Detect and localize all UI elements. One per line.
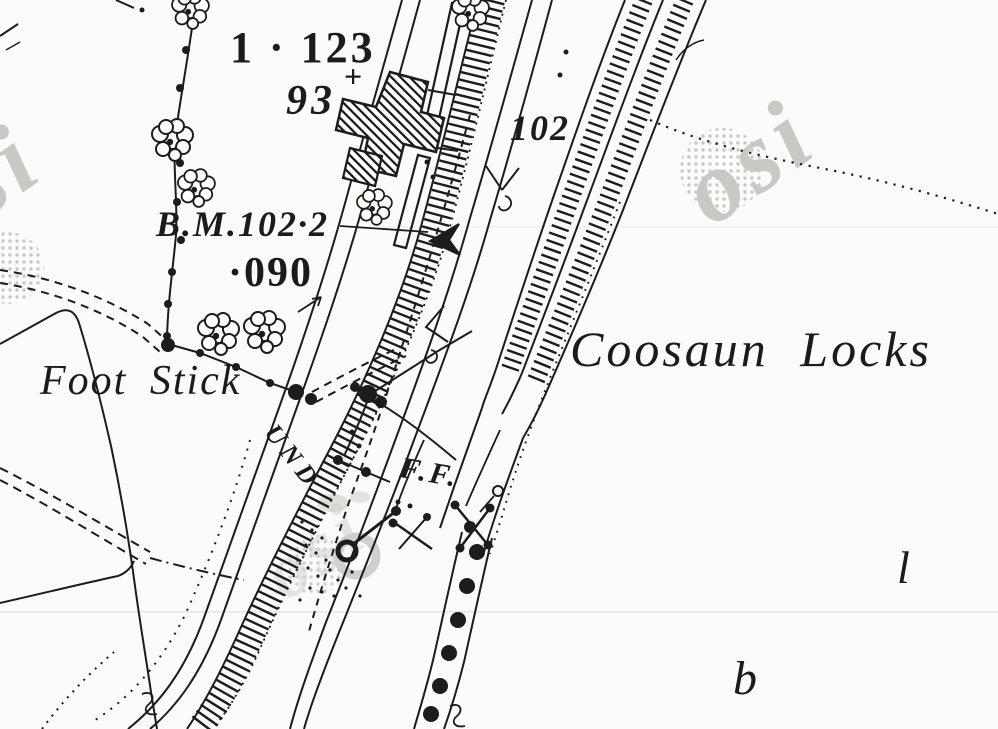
label-letter-b: b: [733, 655, 757, 703]
historic-map-canvas[interactable]: osi osi osi: [0, 0, 998, 729]
plus-mark-icon: +: [344, 60, 362, 92]
label-plot-number-93: 93: [286, 80, 336, 122]
lock-chamber-band: [414, 521, 492, 729]
osi-watermark-right: osi: [661, 78, 835, 246]
canal-embankment-east: [440, 0, 706, 554]
label-spot-height-102: 102: [510, 110, 570, 146]
label-letter-l: l: [897, 545, 910, 591]
osi-watermark-text: osi: [661, 78, 835, 246]
osi-watermark-top-left: osi: [0, 102, 61, 304]
label-area-value-mid: ·090: [228, 252, 313, 294]
label-benchmark: B.M.102·2: [156, 206, 329, 242]
label-foot-stick: Foot Stick: [40, 360, 241, 402]
label-coosaun-locks: Coosaun Locks: [570, 324, 932, 374]
scan-artifact-lines: [0, 226, 998, 613]
